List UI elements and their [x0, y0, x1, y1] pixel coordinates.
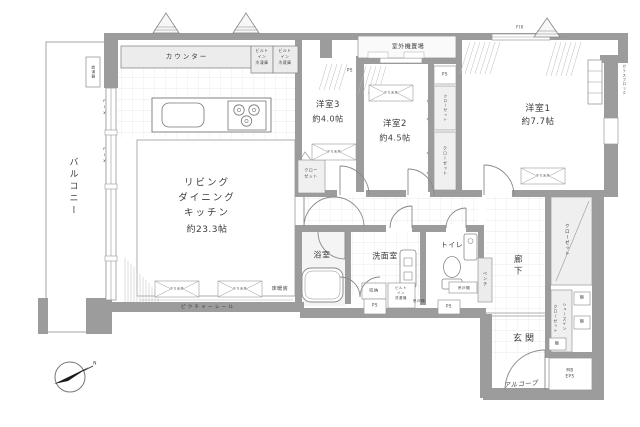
outdoor-unit-area: [358, 36, 456, 58]
compass-icon: [54, 362, 93, 392]
kitchen-island: [152, 98, 271, 132]
floorplan-graphic: [0, 0, 640, 427]
ldk-inner-zone: [137, 140, 295, 300]
floorplan: バルコニー 給湯器 FIX FIX FIX カウンター ビルト イン 冷凍庫 ビ…: [0, 0, 640, 427]
balcony-outline: [46, 42, 106, 332]
